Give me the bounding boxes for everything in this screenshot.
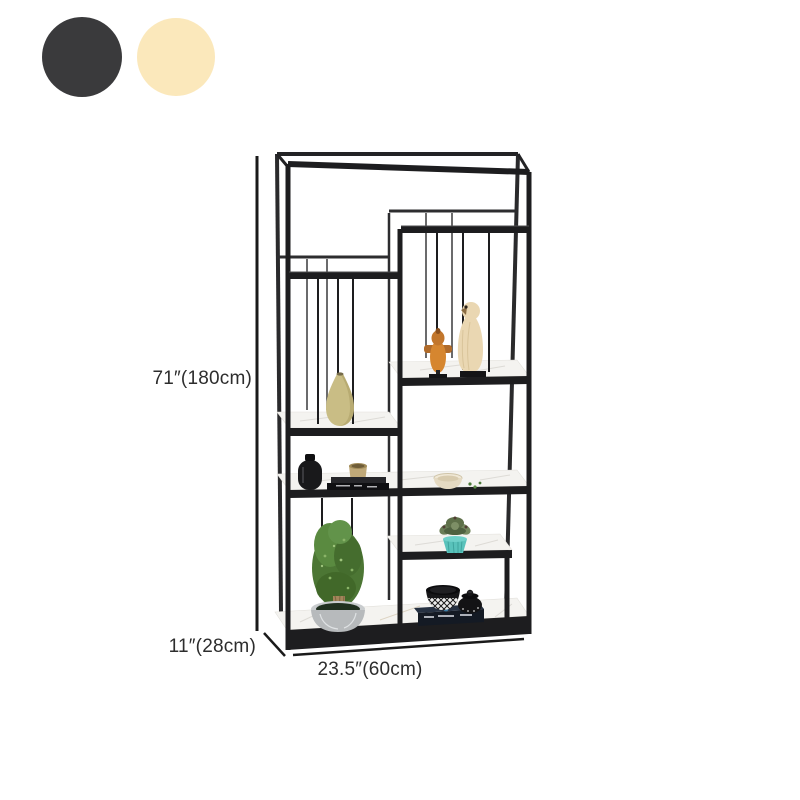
depth-dimension-label: 11″(28cm) — [128, 636, 256, 658]
height-dimension-label: 71″(180cm) — [130, 368, 252, 390]
product-image-canvas: 71″(180cm) 11″(28cm) 23.5″(60cm) — [0, 0, 800, 800]
width-dimension-label: 23.5″(60cm) — [295, 659, 445, 681]
decor-topiary-plant — [311, 520, 365, 632]
decor-tan-vase — [326, 372, 354, 426]
